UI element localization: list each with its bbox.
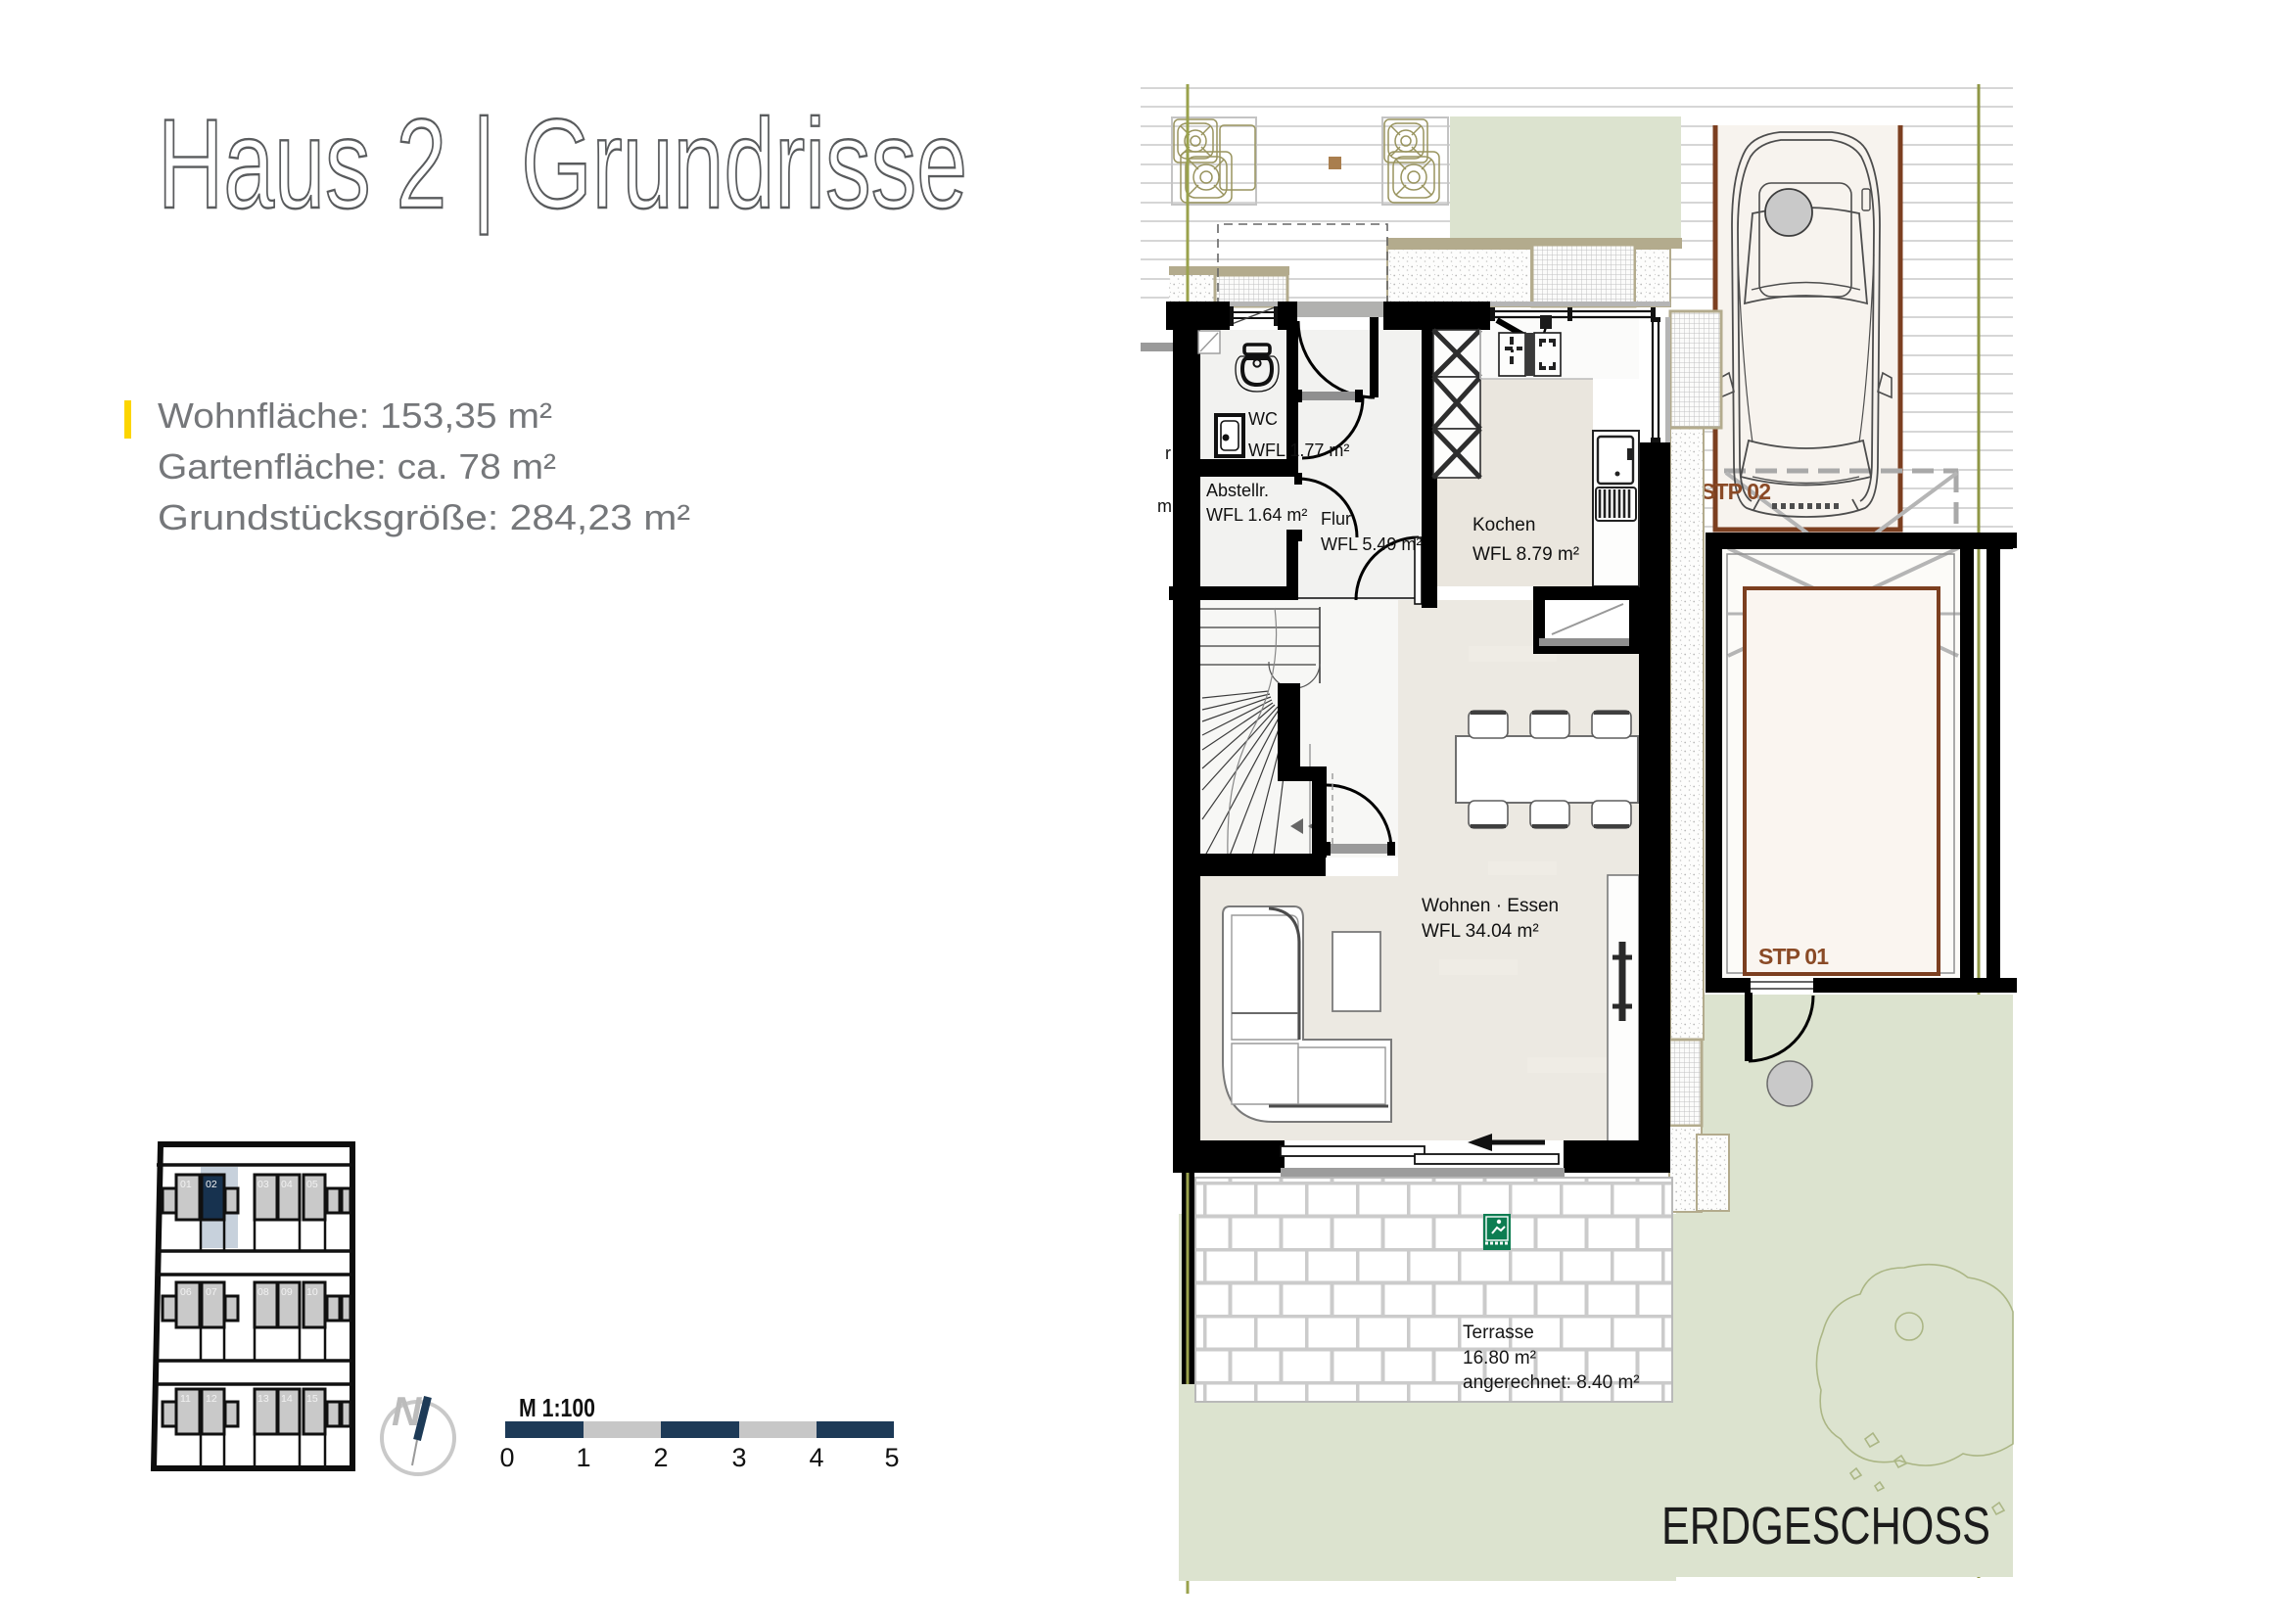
svg-text:4: 4 <box>809 1443 823 1472</box>
svg-text:M 1:100: M 1:100 <box>519 1393 595 1422</box>
svg-text:WFL 1.64 m²: WFL 1.64 m² <box>1206 505 1307 525</box>
svg-text:Terrasse: Terrasse <box>1463 1322 1534 1343</box>
svg-text:ERDGESCHOSS: ERDGESCHOSS <box>1661 1497 1990 1555</box>
svg-text:16.80 m²: 16.80 m² <box>1463 1348 1536 1369</box>
svg-text:Wohnfläche: 153,35 m²: Wohnfläche: 153,35 m² <box>158 395 552 436</box>
svg-text:Haus 2 | Grundrisse: Haus 2 | Grundrisse <box>158 92 967 235</box>
svg-text:14: 14 <box>281 1393 293 1405</box>
svg-text:WFL 1.77 m²: WFL 1.77 m² <box>1248 441 1349 460</box>
svg-text:1: 1 <box>576 1443 590 1472</box>
svg-text:08: 08 <box>257 1286 269 1298</box>
svg-text:09: 09 <box>281 1286 293 1298</box>
svg-text:03: 03 <box>257 1179 269 1190</box>
svg-text:01: 01 <box>180 1179 192 1190</box>
svg-text:12: 12 <box>206 1393 217 1405</box>
svg-text:WFL 5.49 m²: WFL 5.49 m² <box>1321 534 1422 554</box>
svg-text:m: m <box>1157 496 1172 516</box>
svg-text:10: 10 <box>306 1286 318 1298</box>
svg-text:06: 06 <box>180 1286 192 1298</box>
svg-text:Kochen: Kochen <box>1472 515 1535 535</box>
svg-text:WC: WC <box>1248 409 1278 429</box>
svg-text:13: 13 <box>257 1393 269 1405</box>
svg-text:WFL 8.79 m²: WFL 8.79 m² <box>1472 544 1579 565</box>
svg-text:r: r <box>1165 443 1171 463</box>
svg-text:Grundstücksgröße: 284,23 m²: Grundstücksgröße: 284,23 m² <box>158 497 690 537</box>
svg-text:STP 01: STP 01 <box>1758 944 1829 969</box>
svg-text:Flur: Flur <box>1321 509 1351 529</box>
svg-text:05: 05 <box>306 1179 318 1190</box>
svg-text:Gartenfläche: ca. 78 m²: Gartenfläche: ca. 78 m² <box>158 446 556 487</box>
svg-text:5: 5 <box>884 1443 899 1472</box>
svg-text:2: 2 <box>653 1443 668 1472</box>
svg-text:Abstellr.: Abstellr. <box>1206 481 1269 500</box>
svg-text:15: 15 <box>306 1393 318 1405</box>
svg-text:WFL 34.04 m²: WFL 34.04 m² <box>1422 921 1539 942</box>
svg-text:07: 07 <box>206 1286 217 1298</box>
svg-text:02: 02 <box>206 1179 217 1190</box>
svg-text:11: 11 <box>180 1393 191 1405</box>
svg-text:Wohnen · Essen: Wohnen · Essen <box>1422 896 1559 916</box>
svg-text:04: 04 <box>281 1179 293 1190</box>
svg-text:STP 02: STP 02 <box>1701 479 1771 504</box>
svg-text:angerechnet: 8.40 m²: angerechnet: 8.40 m² <box>1463 1372 1640 1393</box>
svg-text:3: 3 <box>731 1443 746 1472</box>
svg-text:0: 0 <box>499 1443 514 1472</box>
